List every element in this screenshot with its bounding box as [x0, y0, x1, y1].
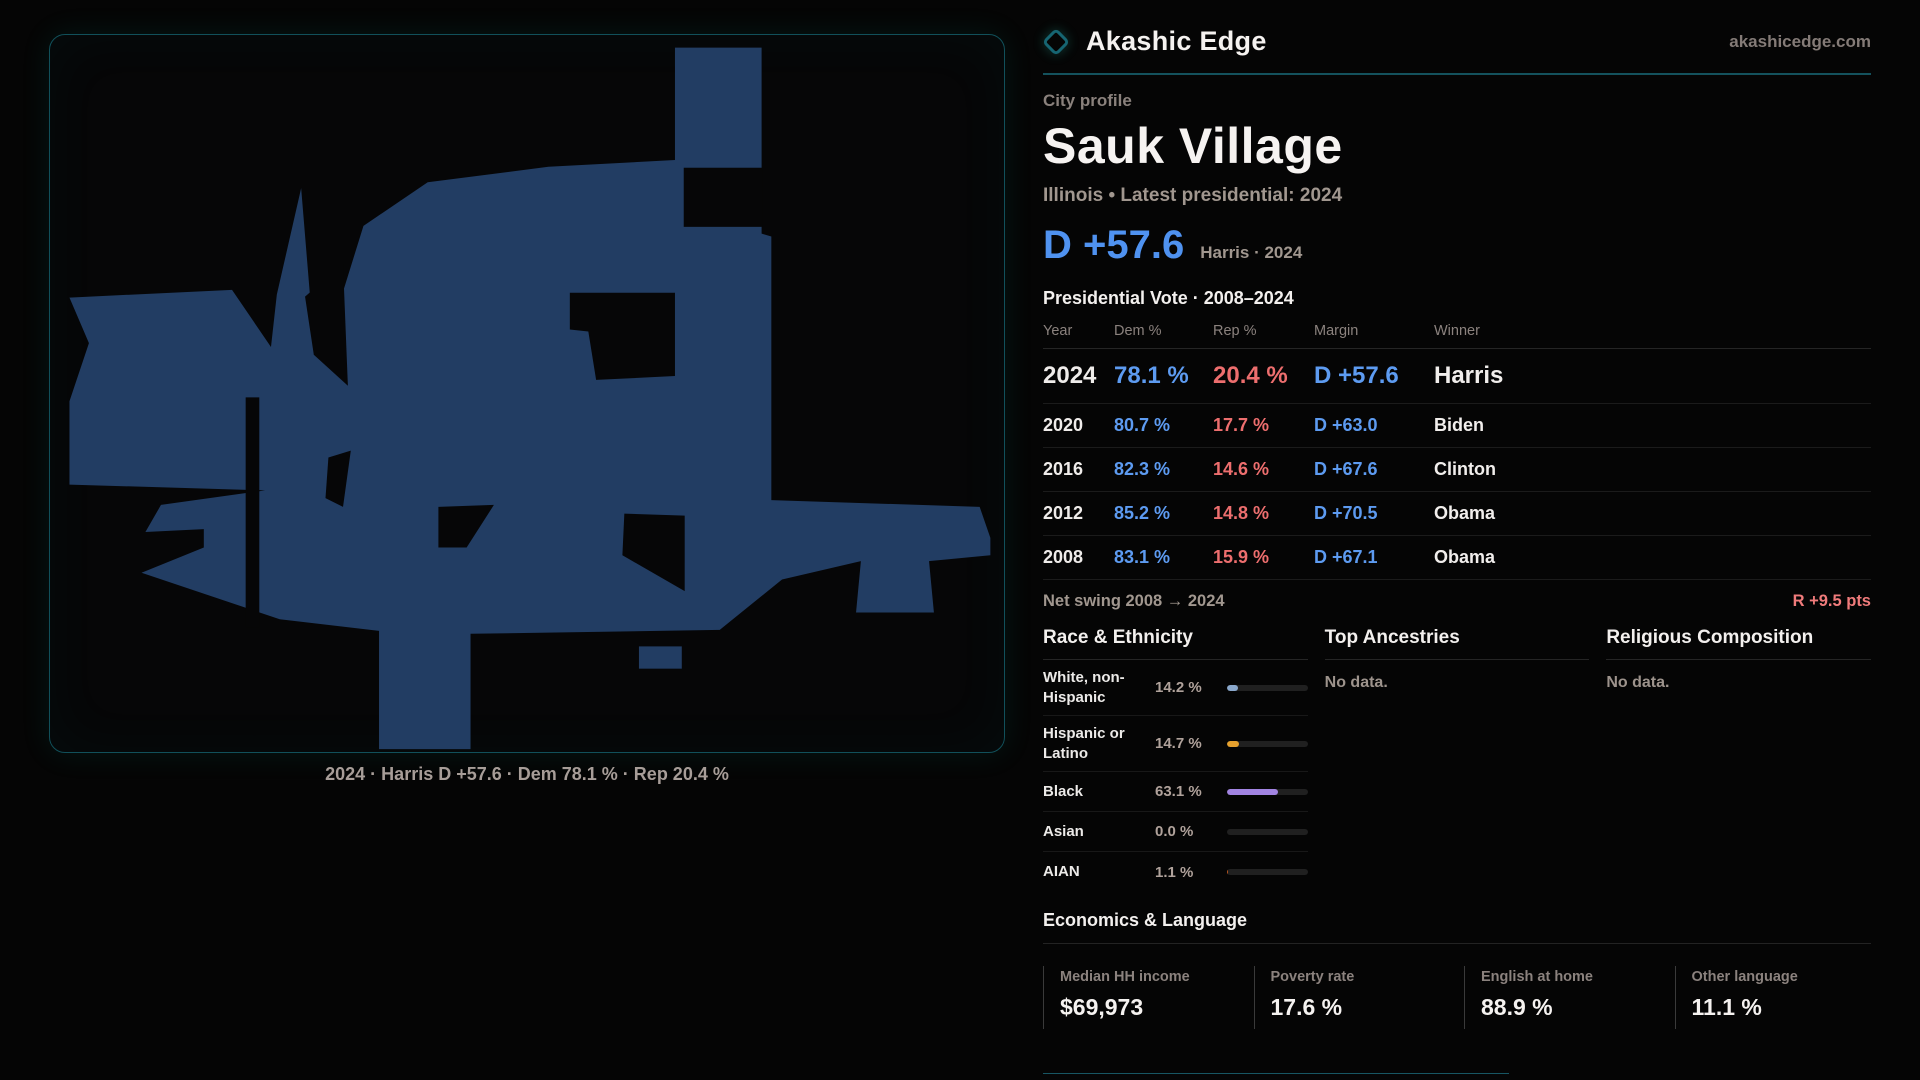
vote-cell-margin: D +63.0	[1314, 415, 1434, 436]
race-bar-fill	[1227, 789, 1278, 795]
vote-cell-year: 2016	[1043, 459, 1114, 480]
stat-label: Other language	[1692, 969, 1872, 985]
religion-empty-state: No data.	[1606, 674, 1871, 692]
brand-name: Akashic Edge	[1086, 26, 1267, 57]
ancestries-empty-state: No data.	[1325, 674, 1590, 692]
stat-label: Poverty rate	[1271, 969, 1451, 985]
race-bar-fill	[1227, 869, 1228, 875]
headline-margin: D +57.6	[1043, 223, 1184, 268]
col-header-margin: Margin	[1314, 323, 1434, 339]
net-swing-value: R +9.5 pts	[1793, 592, 1871, 611]
stat-value: 88.9 %	[1481, 994, 1661, 1021]
map-hole	[246, 397, 260, 627]
race-bar-fill	[1227, 741, 1239, 747]
religion-section: Religious Composition No data.	[1606, 627, 1871, 892]
race-row: Hispanic or Latino14.7 %	[1043, 716, 1308, 772]
vote-cell-year: 2008	[1043, 547, 1114, 568]
city-map	[49, 34, 1005, 753]
vote-table-title: Presidential Vote · 2008–2024	[1043, 288, 1871, 309]
header: Akashic Edge akashicedge.com	[1043, 26, 1871, 75]
race-label: White, non-Hispanic	[1043, 668, 1155, 707]
net-swing-row: Net swing 2008 → 2024 R +9.5 pts	[1043, 580, 1871, 621]
stat-card: Poverty rate17.6 %	[1254, 966, 1451, 1029]
race-value: 1.1 %	[1155, 864, 1227, 881]
vote-cell-rep: 20.4 %	[1213, 362, 1314, 390]
vote-cell-dem: 83.1 %	[1114, 547, 1213, 568]
race-bar-track	[1227, 685, 1308, 691]
vote-cell-rep: 14.8 %	[1213, 503, 1314, 524]
vote-table-row: 202478.1 %20.4 %D +57.6Harris	[1043, 349, 1871, 404]
econ-stats: Median HH income$69,973Poverty rate17.6 …	[1043, 966, 1871, 1029]
vote-table-header: Year Dem % Rep % Margin Winner	[1043, 323, 1871, 349]
vote-cell-rep: 17.7 %	[1213, 415, 1314, 436]
col-header-dem: Dem %	[1114, 323, 1213, 339]
vote-cell-winner: Biden	[1434, 415, 1871, 436]
race-bar-track	[1227, 741, 1308, 747]
race-value: 14.7 %	[1155, 735, 1227, 752]
headline-margin-row: D +57.6 Harris · 2024	[1043, 223, 1871, 268]
vote-cell-dem: 78.1 %	[1114, 362, 1213, 390]
city-profile-page: 2024 · Harris D +57.6 · Dem 78.1 % · Rep…	[0, 0, 1920, 1080]
vote-cell-dem: 82.3 %	[1114, 459, 1213, 480]
col-header-rep: Rep %	[1213, 323, 1314, 339]
col-header-winner: Winner	[1434, 323, 1871, 339]
vote-cell-dem: 80.7 %	[1114, 415, 1213, 436]
vote-cell-margin: D +57.6	[1314, 362, 1434, 390]
race-value: 63.1 %	[1155, 783, 1227, 800]
col-header-year: Year	[1043, 323, 1114, 339]
vote-table: Year Dem % Rep % Margin Winner 202478.1 …	[1043, 323, 1871, 580]
race-row: White, non-Hispanic14.2 %	[1043, 660, 1308, 716]
city-boundary-map	[50, 35, 1004, 752]
vote-table-row: 200883.1 %15.9 %D +67.1Obama	[1043, 536, 1871, 580]
vote-table-body: 202478.1 %20.4 %D +57.6Harris202080.7 %1…	[1043, 349, 1871, 580]
stat-label: Median HH income	[1060, 969, 1240, 985]
stat-label: English at home	[1481, 969, 1661, 985]
net-swing-label: Net swing 2008 → 2024	[1043, 592, 1225, 611]
race-value: 14.2 %	[1155, 679, 1227, 696]
kicker: City profile	[1043, 91, 1871, 111]
vote-table-row: 202080.7 %17.7 %D +63.0Biden	[1043, 404, 1871, 448]
race-section-title: Race & Ethnicity	[1043, 627, 1308, 660]
stat-value: $69,973	[1060, 994, 1240, 1021]
race-label: Asian	[1043, 822, 1155, 842]
stat-value: 17.6 %	[1271, 994, 1451, 1021]
race-label: Hispanic or Latino	[1043, 724, 1155, 763]
ancestries-section-title: Top Ancestries	[1325, 627, 1590, 660]
map-caption: 2024 · Harris D +57.6 · Dem 78.1 % · Rep…	[49, 764, 1005, 785]
vote-cell-winner: Harris	[1434, 362, 1871, 390]
headline-note: Harris · 2024	[1200, 243, 1302, 263]
brand-domain-link[interactable]: akashicedge.com	[1729, 32, 1871, 52]
footer: Sources: Akashic Edge elections database…	[1043, 1073, 1509, 1080]
vote-cell-margin: D +67.1	[1314, 547, 1434, 568]
diamond-logo-icon	[1042, 27, 1070, 55]
religion-section-title: Religious Composition	[1606, 627, 1871, 660]
ancestries-section: Top Ancestries No data.	[1325, 627, 1590, 892]
vote-cell-dem: 85.2 %	[1114, 503, 1213, 524]
vote-cell-winner: Obama	[1434, 503, 1871, 524]
stat-card: English at home88.9 %	[1464, 966, 1661, 1029]
race-bar-track	[1227, 869, 1308, 875]
vote-cell-margin: D +70.5	[1314, 503, 1434, 524]
demographics-columns: Race & Ethnicity White, non-Hispanic14.2…	[1043, 627, 1871, 892]
economics-section-title: Economics & Language	[1043, 910, 1871, 944]
race-bar-track	[1227, 789, 1308, 795]
race-ethnicity-section: Race & Ethnicity White, non-Hispanic14.2…	[1043, 627, 1308, 892]
vote-cell-year: 2012	[1043, 503, 1114, 524]
race-row: Asian0.0 %	[1043, 812, 1308, 852]
race-row: AIAN1.1 %	[1043, 852, 1308, 892]
race-value: 0.0 %	[1155, 823, 1227, 840]
race-label: Black	[1043, 782, 1155, 802]
vote-cell-rep: 15.9 %	[1213, 547, 1314, 568]
vote-table-row: 201682.3 %14.6 %D +67.6Clinton	[1043, 448, 1871, 492]
race-bar-fill	[1227, 685, 1238, 691]
stat-card: Median HH income$69,973	[1043, 966, 1240, 1029]
race-bar-track	[1227, 829, 1308, 835]
subtitle: Illinois • Latest presidential: 2024	[1043, 185, 1871, 207]
map-hole	[684, 168, 763, 227]
map-detached-parcel	[639, 646, 682, 668]
race-row: Black63.1 %	[1043, 772, 1308, 812]
stat-value: 11.1 %	[1692, 994, 1872, 1021]
vote-table-row: 201285.2 %14.8 %D +70.5Obama	[1043, 492, 1871, 536]
vote-cell-year: 2020	[1043, 415, 1114, 436]
vote-cell-margin: D +67.6	[1314, 459, 1434, 480]
profile-panel: Akashic Edge akashicedge.com City profil…	[1043, 26, 1871, 1080]
city-boundary-shape	[69, 48, 990, 749]
vote-cell-winner: Clinton	[1434, 459, 1871, 480]
vote-cell-year: 2024	[1043, 362, 1114, 390]
page-title: Sauk Village	[1043, 117, 1871, 175]
race-label: AIAN	[1043, 862, 1155, 882]
stat-card: Other language11.1 %	[1675, 966, 1872, 1029]
vote-cell-winner: Obama	[1434, 547, 1871, 568]
vote-cell-rep: 14.6 %	[1213, 459, 1314, 480]
race-rows: White, non-Hispanic14.2 %Hispanic or Lat…	[1043, 660, 1308, 892]
